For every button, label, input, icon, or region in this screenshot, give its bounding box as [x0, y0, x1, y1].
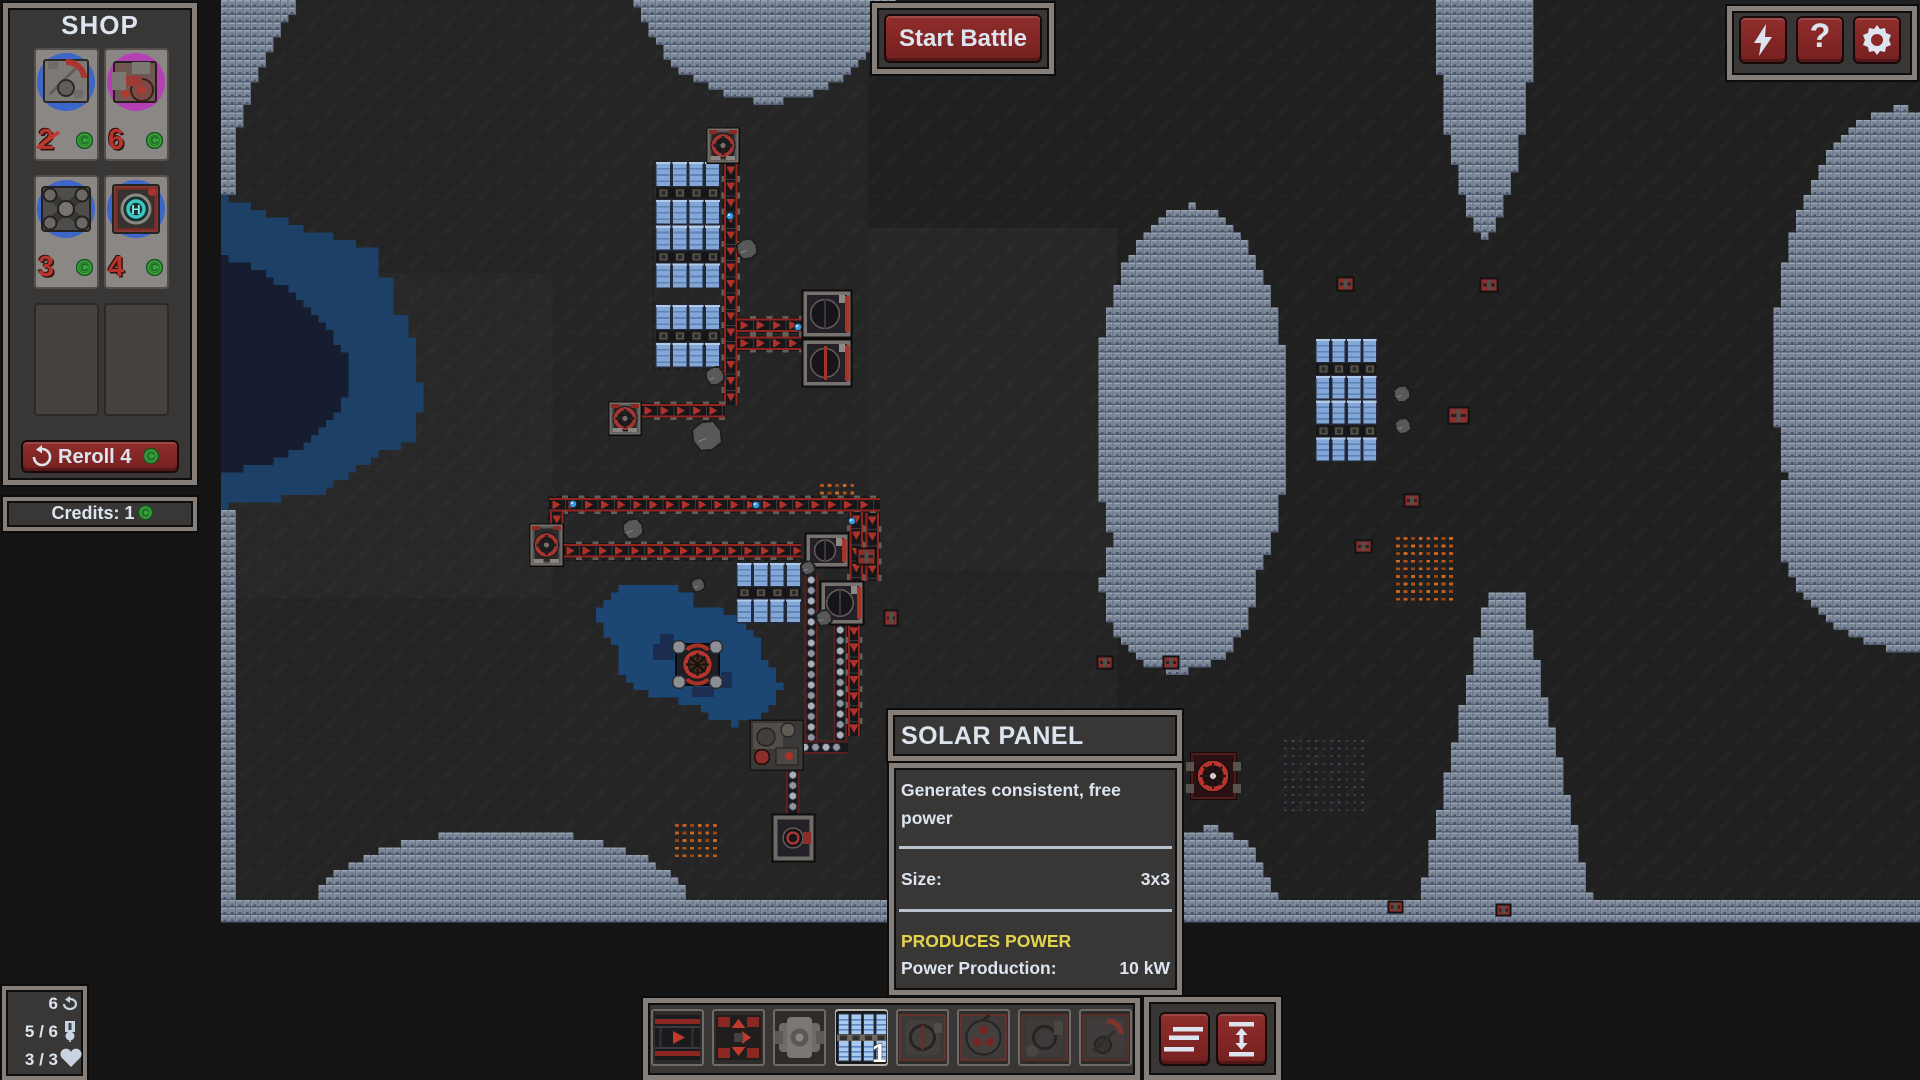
svg-text:H: H	[131, 202, 140, 217]
svg-text:C: C	[151, 135, 159, 147]
svg-text:C: C	[81, 135, 89, 147]
svg-text:C: C	[142, 508, 149, 518]
svg-text:C: C	[147, 452, 154, 463]
svg-text:1: 1	[872, 1038, 886, 1064]
svg-text:C: C	[151, 262, 159, 274]
svg-text:C: C	[81, 262, 89, 274]
